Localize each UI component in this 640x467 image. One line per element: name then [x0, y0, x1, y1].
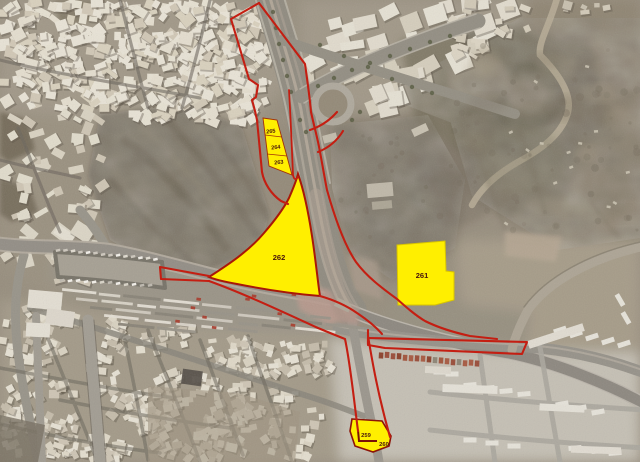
- svg-text:262: 262: [273, 253, 286, 262]
- svg-text:260: 260: [379, 442, 389, 448]
- svg-text:263: 263: [274, 160, 284, 167]
- svg-text:265: 265: [266, 129, 276, 136]
- svg-text:261: 261: [416, 271, 429, 280]
- svg-text:259: 259: [361, 433, 371, 439]
- svg-text:264: 264: [271, 144, 282, 151]
